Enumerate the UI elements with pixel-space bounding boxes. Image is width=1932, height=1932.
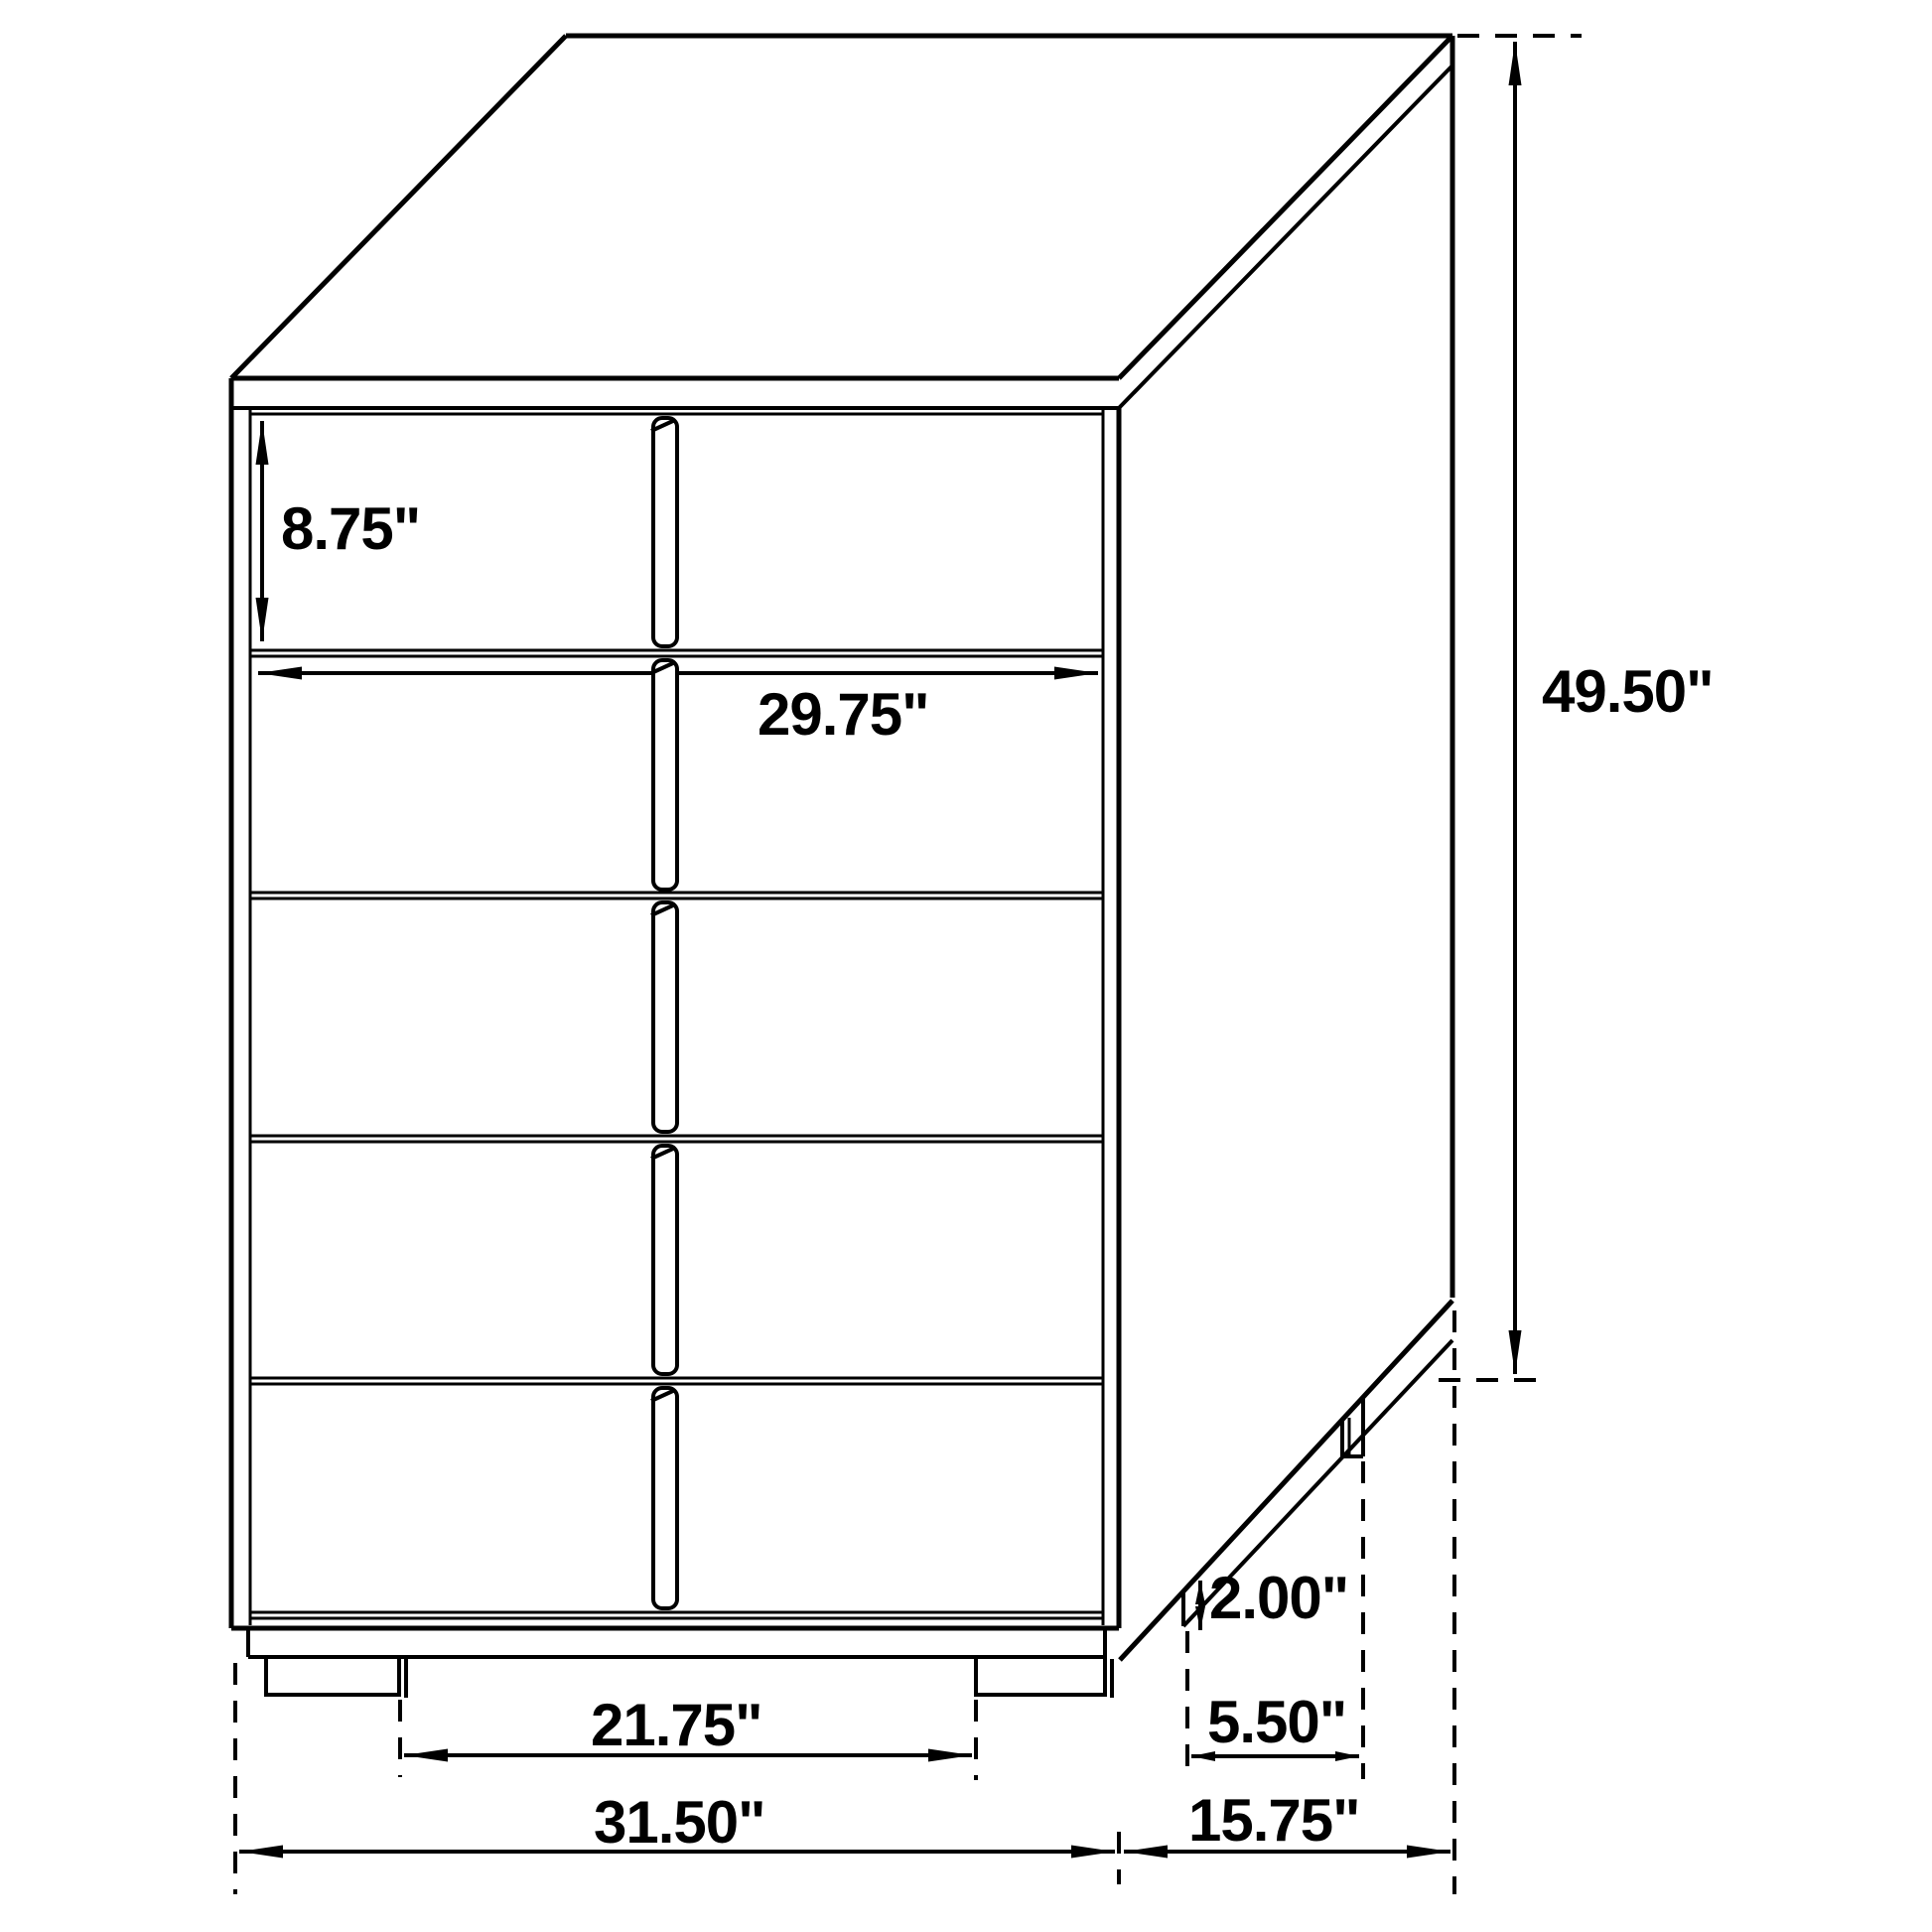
dim-foot-height: 2.00" bbox=[1200, 1565, 1348, 1631]
drawer-handle-1 bbox=[653, 418, 677, 646]
drawer-handle-5 bbox=[653, 1388, 677, 1608]
drawer-handle-3 bbox=[653, 902, 677, 1132]
front-foot-right bbox=[976, 1657, 1112, 1698]
dim-overall-height-label: 49.50" bbox=[1542, 658, 1714, 725]
dim-drawer-height-label: 8.75" bbox=[281, 495, 420, 562]
drawer-handle-4 bbox=[653, 1146, 677, 1374]
dim-drawer-front-width-label: 29.75" bbox=[758, 681, 929, 748]
dim-overall-depth-label: 15.75" bbox=[1188, 1787, 1360, 1854]
front-foot-left bbox=[266, 1657, 406, 1698]
background bbox=[0, 0, 1932, 1932]
dim-overall-width-label: 31.50" bbox=[594, 1789, 765, 1856]
drawer-handle-2 bbox=[653, 660, 677, 890]
dim-side-foot-spacing-label: 5.50" bbox=[1207, 1689, 1346, 1755]
chest-dimension-drawing: 8.75" 29.75" 49.50" 2.00" 5.50" 21.75" 3… bbox=[0, 0, 1932, 1932]
dim-front-foot-spacing-label: 21.75" bbox=[591, 1692, 762, 1758]
dimension-diagram-canvas: 8.75" 29.75" 49.50" 2.00" 5.50" 21.75" 3… bbox=[0, 0, 1932, 1932]
drawer-handles bbox=[651, 418, 677, 1608]
dim-foot-height-label: 2.00" bbox=[1209, 1565, 1348, 1631]
